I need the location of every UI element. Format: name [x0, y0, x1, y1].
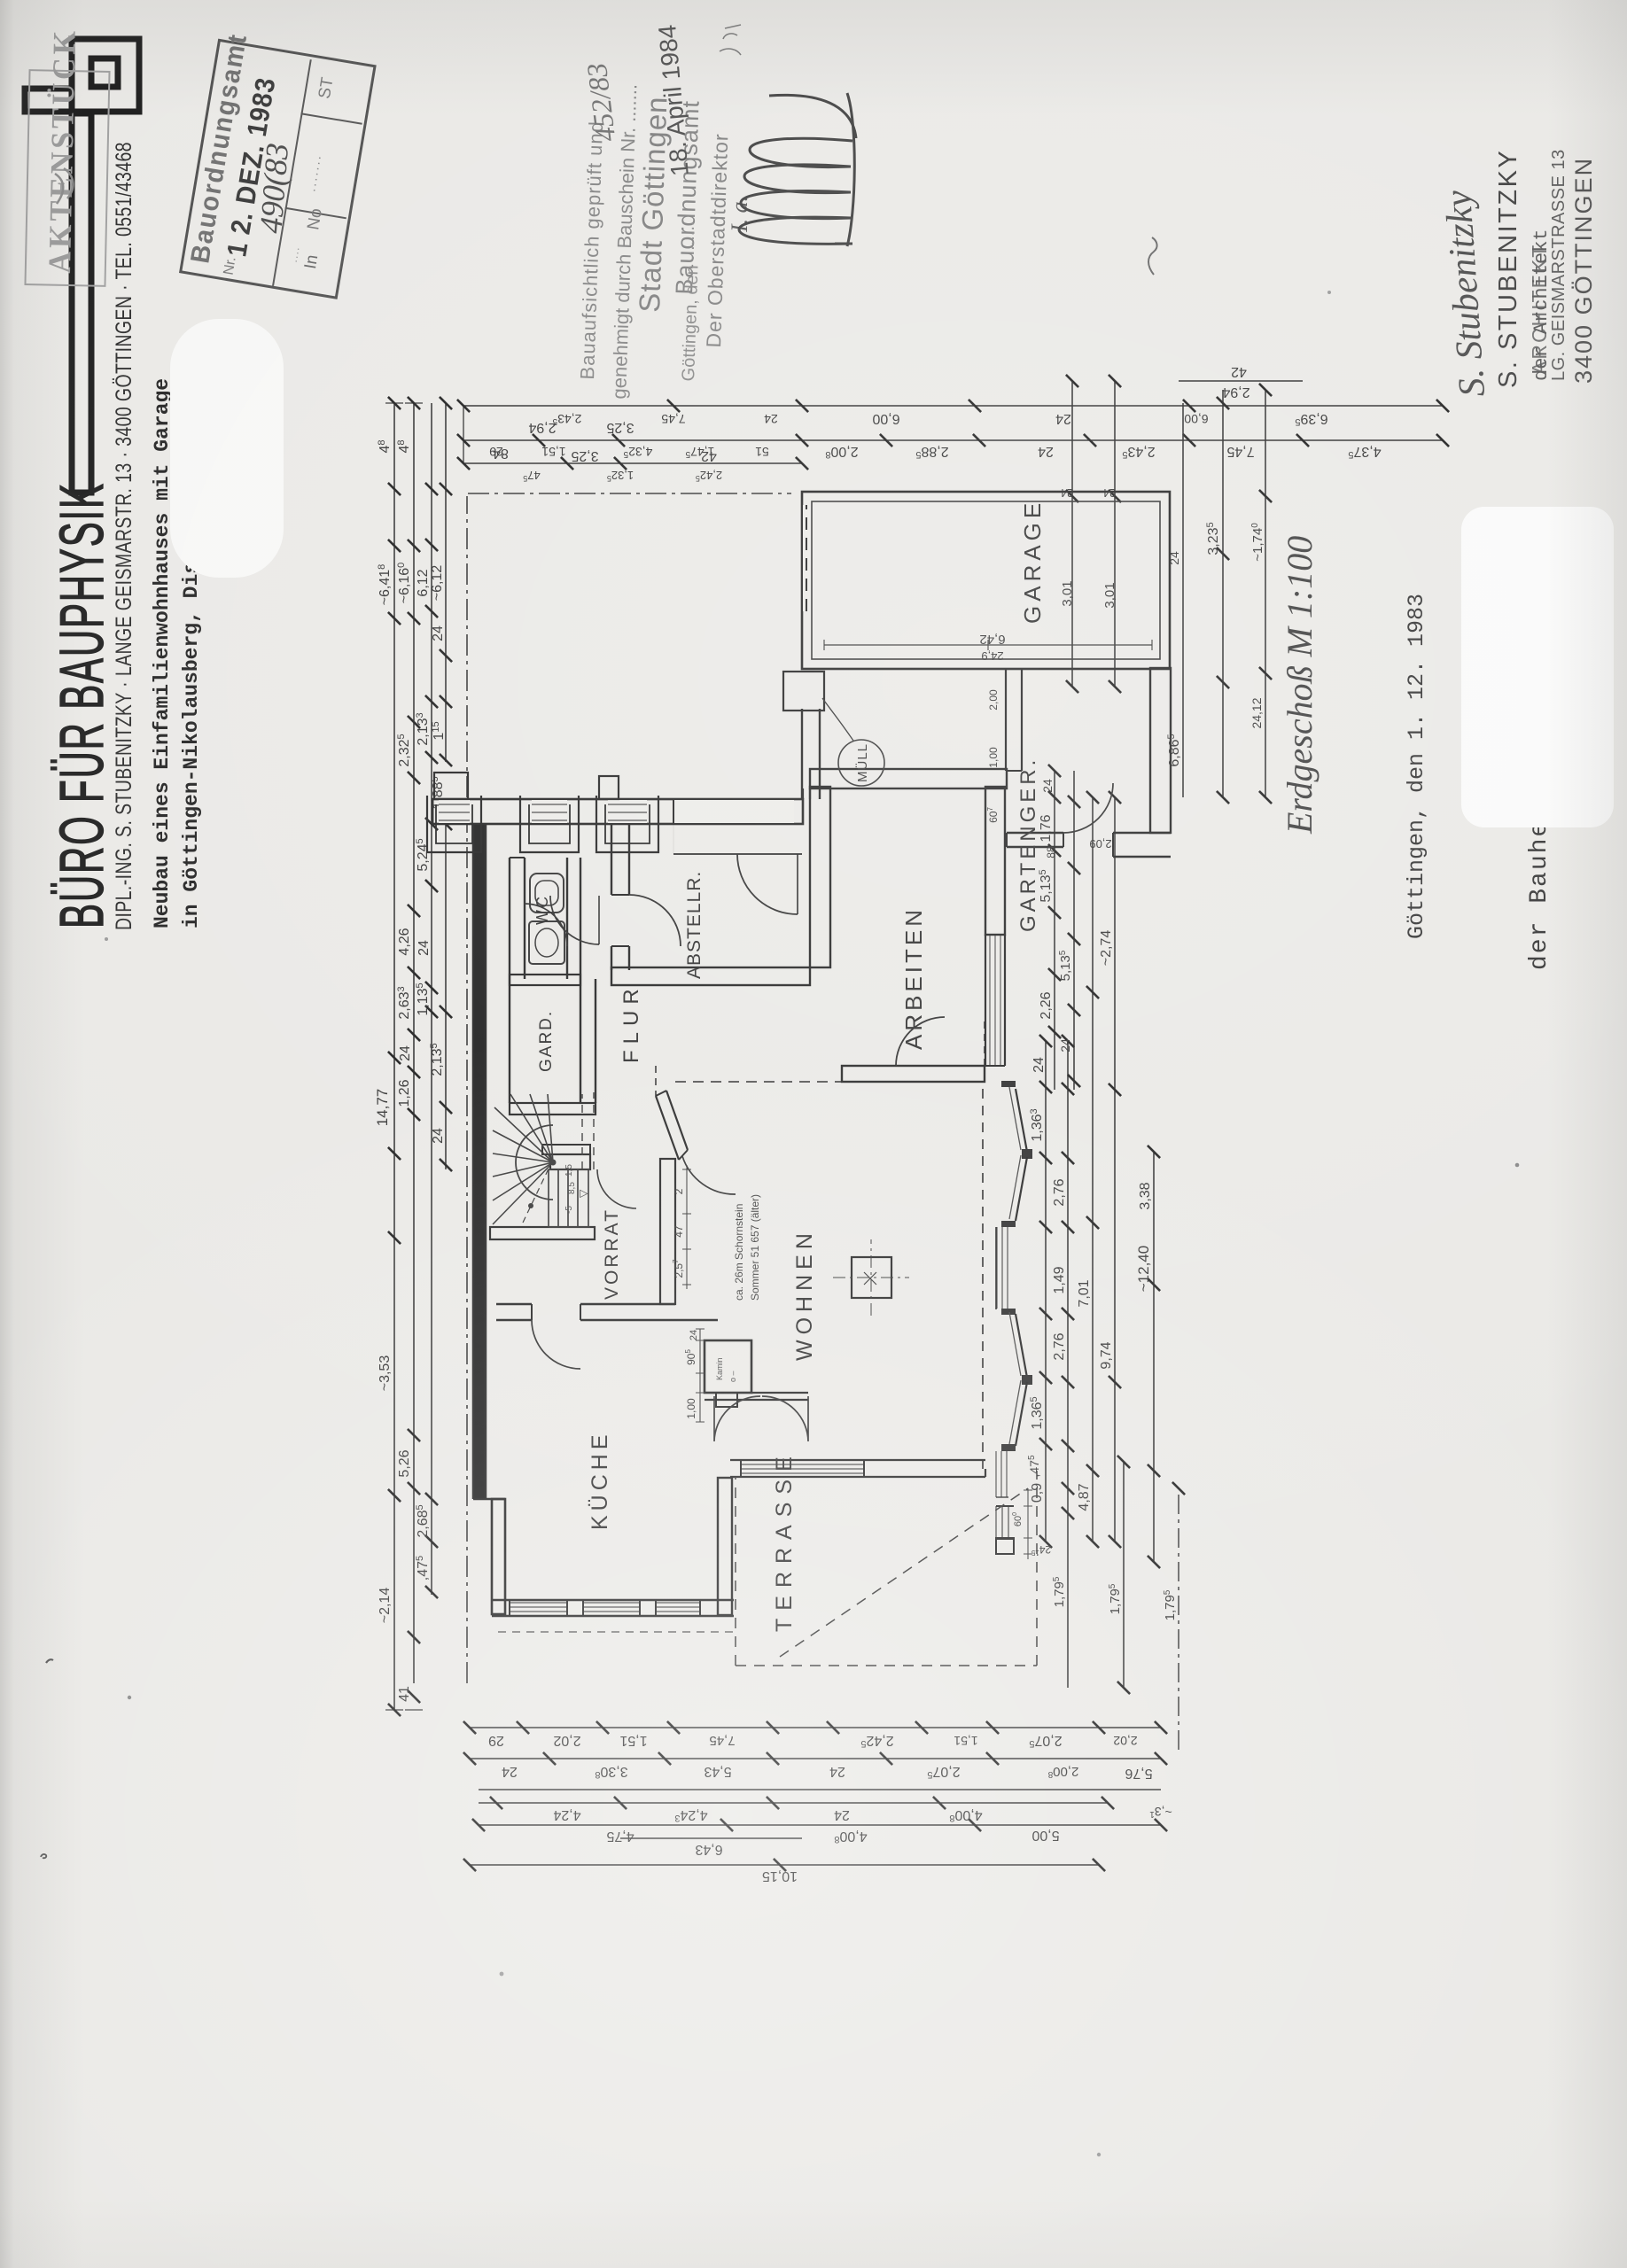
svg-text:2,94: 2,94: [528, 420, 556, 435]
svg-text:,475: ,475: [1027, 1455, 1041, 1477]
svg-text:4,325: 4,325: [623, 445, 652, 459]
svg-text:Sommer 51 657 (älter): Sommer 51 657 (älter): [749, 1194, 761, 1301]
svg-text:MÜLL: MÜLL: [854, 743, 870, 782]
svg-text:1,51: 1,51: [541, 445, 565, 459]
svg-text:2,26: 2,26: [1039, 991, 1054, 1019]
svg-text:6,865: 6,865: [1166, 734, 1182, 766]
svg-text:24: 24: [834, 1807, 850, 1822]
svg-text:2,425: 2,425: [696, 469, 722, 483]
svg-text:6,00: 6,00: [1184, 412, 1208, 426]
svg-text:3,01: 3,01: [1102, 582, 1117, 608]
svg-text:24: 24: [1058, 1038, 1072, 1052]
svg-text:29: 29: [488, 1733, 504, 1748]
svg-text:10,15: 10,15: [762, 1868, 798, 1884]
svg-text:6,395: 6,395: [1295, 411, 1327, 427]
svg-text:48: 48: [396, 439, 412, 453]
svg-text:GARAGE: GARAGE: [1019, 499, 1046, 624]
svg-text:5,76: 5,76: [1125, 1766, 1152, 1781]
svg-text:5,00: 5,00: [1031, 1828, 1059, 1843]
svg-text:1,51: 1,51: [954, 1734, 977, 1748]
svg-text:3,25: 3,25: [571, 448, 598, 463]
svg-text:~12,40: ~12,40: [1135, 1246, 1152, 1292]
svg-text:~1,740: ~1,740: [1250, 523, 1265, 562]
svg-text:41: 41: [397, 1686, 412, 1702]
svg-text:24: 24: [1061, 486, 1073, 500]
svg-text:-5: -5: [564, 1206, 574, 1214]
svg-text:2,435: 2,435: [1122, 444, 1155, 460]
svg-text:6,00: 6,00: [872, 411, 899, 426]
svg-text:24: 24: [1040, 779, 1055, 793]
svg-text:1,5: 1,5: [564, 1164, 574, 1177]
svg-text:6,12: 6,12: [416, 569, 431, 596]
svg-text:6,42: 6,42: [979, 632, 1005, 647]
svg-text:1,26: 1,26: [397, 1079, 412, 1107]
svg-text:24,12: 24,12: [1249, 697, 1264, 728]
svg-text:5,43: 5,43: [704, 1764, 731, 1779]
svg-text:5,245: 5,245: [415, 838, 431, 871]
svg-text:24: 24: [1031, 1057, 1047, 1073]
svg-text:2,02: 2,02: [1113, 1734, 1137, 1748]
svg-text:1,00: 1,00: [987, 747, 1000, 768]
svg-text:24,9: 24,9: [981, 649, 1003, 663]
svg-text:3,38: 3,38: [1138, 1182, 1153, 1209]
svg-text:475: 475: [523, 469, 540, 483]
svg-text:88: 88: [1045, 846, 1057, 858]
svg-text:24: 24: [1038, 444, 1054, 459]
svg-text:1,76: 1,76: [1039, 814, 1054, 842]
svg-text:2,075: 2,075: [927, 1764, 960, 1780]
svg-text:1,475: 1,475: [685, 445, 714, 459]
svg-text:2,075: 2,075: [1029, 1733, 1062, 1749]
svg-text:7,45: 7,45: [709, 1733, 735, 1748]
svg-text:29: 29: [489, 445, 503, 459]
svg-text:▽: ▽: [577, 1189, 589, 1198]
svg-text:3,01: 3,01: [1060, 580, 1075, 606]
svg-text:2415: 2415: [1031, 1543, 1051, 1557]
svg-text:14,77: 14,77: [374, 1089, 391, 1127]
svg-text:6,43: 6,43: [695, 1842, 722, 1857]
svg-text:1,135: 1,135: [415, 983, 431, 1015]
svg-text:2,94: 2,94: [1222, 384, 1249, 400]
svg-text:2: 2: [673, 1188, 685, 1194]
svg-text:607: 607: [986, 807, 1000, 823]
svg-text:1,325: 1,325: [607, 469, 634, 483]
svg-text:GARD.: GARD.: [537, 1010, 556, 1072]
svg-text:2,425: 2,425: [860, 1733, 893, 1749]
svg-text:9,74: 9,74: [1099, 1341, 1114, 1369]
svg-text:~2,74: ~2,74: [1099, 930, 1114, 967]
svg-text:4,243: 4,243: [674, 1807, 707, 1823]
svg-text:~2,14: ~2,14: [378, 1588, 393, 1624]
svg-text:ca. 26m Schornstein: ca. 26m Schornstein: [733, 1204, 745, 1301]
svg-text:2,76: 2,76: [1052, 1332, 1067, 1360]
svg-text:2,57: 2,57: [672, 1259, 685, 1278]
svg-text:24: 24: [1103, 486, 1116, 500]
svg-text:42: 42: [1231, 364, 1247, 379]
svg-text:1,795: 1,795: [1052, 1576, 1067, 1607]
svg-text:WOHNEN: WOHNEN: [792, 1228, 817, 1361]
svg-text:~6,418: ~6,418: [377, 564, 393, 606]
svg-text:24: 24: [398, 1045, 413, 1061]
svg-text:1,51: 1,51: [619, 1733, 647, 1748]
svg-text:WC: WC: [533, 895, 551, 925]
svg-text:4,26: 4,26: [397, 928, 412, 955]
svg-text:GARTENGER.: GARTENGER.: [1016, 757, 1040, 932]
svg-text:2,09: 2,09: [1089, 837, 1111, 850]
svg-text:24: 24: [416, 940, 432, 956]
svg-text:24: 24: [502, 1764, 518, 1779]
svg-text:24: 24: [764, 412, 778, 426]
svg-text:2,633: 2,633: [396, 986, 412, 1019]
svg-text:2,00: 2,00: [987, 689, 1000, 711]
svg-text:TERRASSE: TERRASSE: [772, 1449, 797, 1632]
svg-text:47: 47: [673, 1225, 685, 1238]
svg-text:ABSTELLR.: ABSTELLR.: [684, 871, 705, 979]
svg-text:4,375: 4,375: [1348, 444, 1381, 460]
svg-text:2,008: 2,008: [1047, 1764, 1078, 1779]
svg-text:4,75: 4,75: [606, 1829, 634, 1844]
svg-text:ARBEITEN: ARBEITEN: [900, 906, 927, 1050]
svg-text:24: 24: [829, 1764, 845, 1779]
svg-text:905: 905: [684, 1349, 697, 1365]
svg-text:2,008: 2,008: [825, 444, 858, 460]
svg-text:24: 24: [689, 1330, 699, 1340]
svg-text:4,008: 4,008: [949, 1807, 982, 1823]
svg-text:1,795: 1,795: [1163, 1589, 1178, 1620]
svg-text:51: 51: [755, 445, 769, 459]
svg-text:2,435: 2,435: [552, 412, 581, 426]
svg-text:2,76: 2,76: [1052, 1178, 1067, 1206]
svg-text:~,31: ~,31: [1149, 1805, 1172, 1819]
svg-text:2,885: 2,885: [915, 444, 948, 460]
svg-text:3,25: 3,25: [606, 420, 634, 435]
svg-text:24: 24: [431, 625, 446, 641]
svg-text:1,00: 1,00: [685, 1398, 697, 1419]
svg-text:o –: o –: [728, 1371, 737, 1382]
svg-text:2,02: 2,02: [553, 1733, 580, 1748]
svg-text:48: 48: [377, 439, 393, 453]
svg-text:3,308: 3,308: [595, 1764, 627, 1780]
svg-text:~6,160: ~6,160: [396, 563, 412, 604]
svg-text:2,135: 2,135: [429, 1043, 445, 1076]
svg-text:FLUR: FLUR: [619, 983, 643, 1063]
svg-text:4,87: 4,87: [1077, 1483, 1092, 1511]
svg-text:Kamin: Kamin: [715, 1357, 724, 1380]
svg-text:KÜCHE: KÜCHE: [588, 1430, 612, 1530]
svg-text:1,363: 1,363: [1029, 1108, 1045, 1141]
svg-text:~6,12: ~6,12: [430, 565, 445, 602]
svg-text:5,135: 5,135: [1058, 950, 1073, 981]
svg-text:3,235: 3,235: [1205, 522, 1221, 555]
svg-text:1,795: 1,795: [1108, 1583, 1123, 1614]
svg-text:7,45: 7,45: [661, 412, 685, 426]
svg-text:8,5: 8,5: [567, 1182, 577, 1194]
svg-text:600: 600: [1012, 1512, 1024, 1526]
svg-text:,475: ,475: [415, 1556, 431, 1581]
svg-text:4,24: 4,24: [553, 1807, 580, 1822]
svg-text:1,365: 1,365: [1029, 1396, 1045, 1429]
svg-text:2,685: 2,685: [415, 1504, 431, 1537]
svg-text:7,01: 7,01: [1077, 1279, 1092, 1307]
svg-text:115: 115: [431, 721, 447, 740]
svg-text:4,008: 4,008: [834, 1829, 867, 1845]
svg-text:~3,53: ~3,53: [378, 1355, 393, 1392]
svg-text:5,26: 5,26: [397, 1449, 412, 1477]
svg-text:VORRAT: VORRAT: [602, 1208, 622, 1300]
svg-text:7,45: 7,45: [1226, 444, 1254, 459]
svg-text:2,133: 2,133: [415, 712, 431, 745]
svg-text:24: 24: [431, 1128, 446, 1144]
svg-text:2,325: 2,325: [396, 734, 412, 766]
svg-text:1,49: 1,49: [1052, 1266, 1067, 1293]
svg-text:24: 24: [1055, 411, 1071, 426]
